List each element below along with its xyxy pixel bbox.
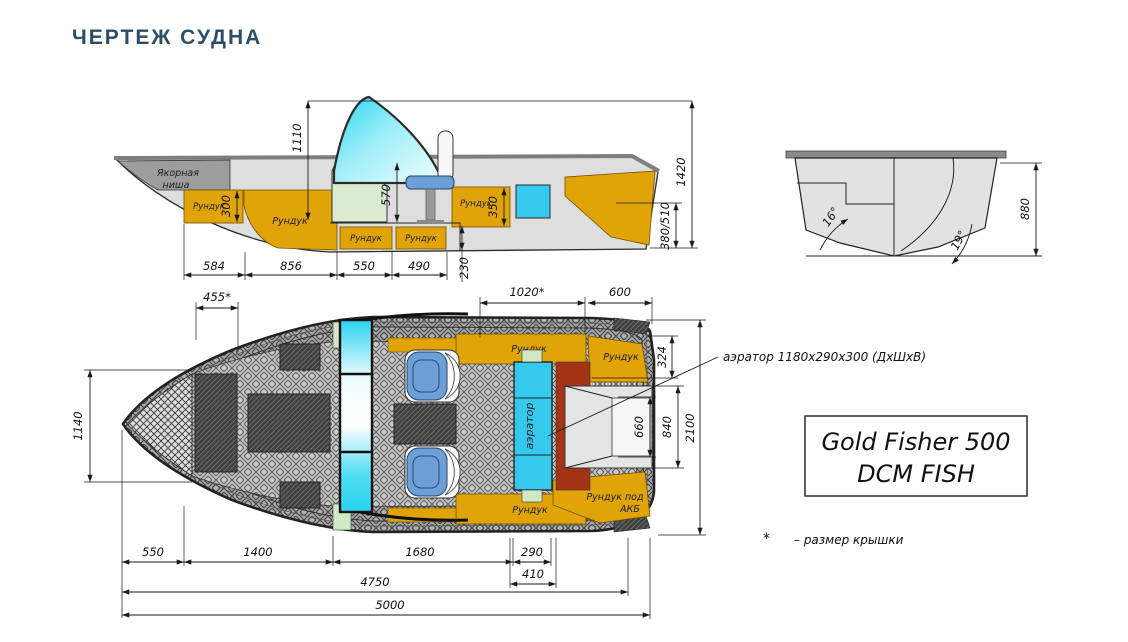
boat-drawing: Якорная ниша Рундук Рундук Рундук Рундук… [0,0,1128,642]
seat-pedestal [426,189,435,220]
footnote-text: – размер крышки [794,533,904,547]
svg-text:1400: 1400 [243,545,272,559]
svg-text:230: 230 [457,257,471,279]
svg-text:490: 490 [408,259,430,273]
hatch-cover [195,374,237,472]
page-title: ЧЕРТЕЖ СУДНА [72,26,262,50]
seat-plan [405,446,460,498]
svg-text:880: 880 [1018,198,1032,220]
dim-455: 455* [196,290,238,352]
svg-text:600: 600 [609,285,631,299]
svg-text:4750: 4750 [360,575,389,589]
svg-text:584: 584 [203,259,225,273]
locker-label: Рундук [512,505,548,516]
seat-plan [405,350,460,402]
aerator-label: аэратор [523,403,536,450]
svg-text:570: 570 [379,184,393,206]
svg-text:350: 350 [486,196,500,218]
locker-label: Рундук [405,234,438,244]
aerator-note-text: аэратор 1180х290х300 (ДхШхВ) [723,350,926,364]
svg-text:380/510: 380/510 [658,202,672,250]
svg-text:1020*: 1020* [509,285,544,299]
model-plate-line1: Gold Fisher 500 [821,428,1010,456]
locker-label: Рундук [272,216,308,227]
svg-text:1420: 1420 [674,157,688,186]
footnote-marker: * [763,531,770,547]
livewell-side [516,185,550,218]
hatch-cover [248,394,330,452]
seat-cushion [406,176,454,189]
svg-text:290: 290 [521,545,543,559]
svg-text:5000: 5000 [375,598,404,612]
locker-label: Рундук [603,352,639,363]
windshield-side [334,97,443,183]
svg-text:660: 660 [632,416,646,438]
hatch-cover-between-seats [394,404,456,444]
windshield-plan [340,320,372,512]
battery-locker-label-2: АКБ [619,504,640,515]
seat-foot [417,220,444,224]
svg-text:1680: 1680 [405,545,434,559]
svg-text:410: 410 [522,567,544,581]
svg-text:840: 840 [660,416,674,438]
svg-text:324: 324 [655,346,669,368]
svg-text:300: 300 [219,195,233,217]
svg-text:550: 550 [353,259,375,273]
dim-840: 840 [654,386,684,468]
rear-gunwale-bar [786,151,1006,158]
side-view: Якорная ниша Рундук Рундук Рундук Рундук… [114,97,698,282]
dim-880: 880 [1000,163,1042,256]
svg-text:1140: 1140 [71,411,85,440]
model-plate: Gold Fisher 500 DCM FISH [805,416,1027,496]
locker-label: Рундук [350,234,383,244]
anchor-niche-label-2: ниша [163,180,190,191]
dim-1420: 1420 [674,101,692,248]
footnote: * – размер крышки [763,531,904,547]
anchor-niche-label-1: Якорная [156,168,199,179]
battery-locker-label-1: Рундук под [586,492,644,503]
svg-text:550: 550 [142,545,164,559]
hatch-cover [280,344,320,370]
svg-text:455*: 455* [203,290,231,304]
plan-view: Рундук Рундук Рундук Рундук под АКБ аэра… [71,285,926,619]
green-pad [522,490,542,502]
rear-view: 16° 19° 880 [786,151,1042,264]
drawing-page: ЧЕРТЕЖ СУДНА [0,0,1128,642]
seat-backrest [438,131,453,181]
svg-text:1110: 1110 [290,123,304,152]
svg-text:2100: 2100 [683,413,697,442]
model-plate-line2: DCM FISH [857,460,975,488]
hatch-cover [280,482,320,508]
svg-text:856: 856 [280,259,302,273]
green-pad [522,350,542,362]
